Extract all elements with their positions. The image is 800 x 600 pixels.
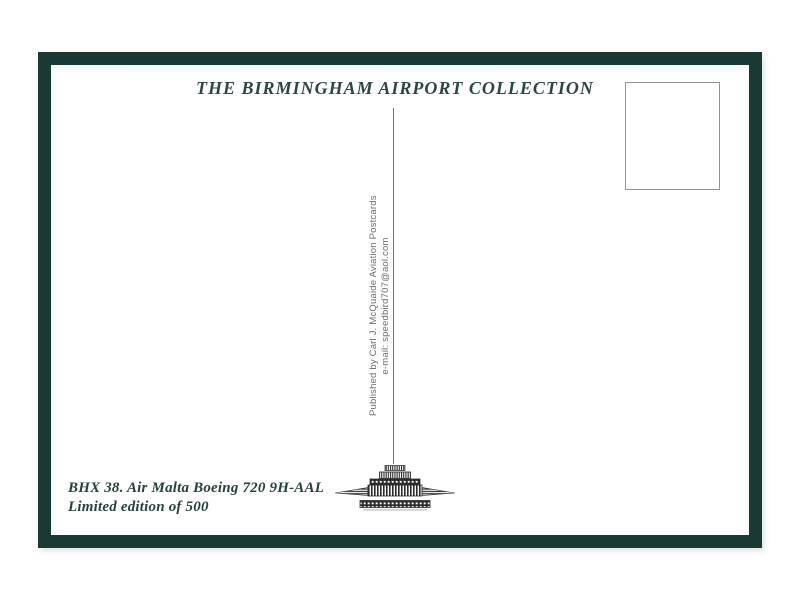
postcard-back: THE BIRMINGHAM AIRPORT COLLECTION Publis… xyxy=(38,52,762,548)
airport-terminal-logo-icon xyxy=(335,462,455,514)
address-divider-line xyxy=(393,108,394,464)
caption-block: BHX 38. Air Malta Boeing 720 9H-AAL Limi… xyxy=(68,479,324,517)
caption-title-line: BHX 38. Air Malta Boeing 720 9H-AAL xyxy=(68,479,324,498)
caption-edition-line: Limited edition of 500 xyxy=(68,498,324,517)
publisher-line: Published by Carl J. McQuaide Aviation P… xyxy=(368,196,380,416)
stamp-box xyxy=(625,82,720,190)
postcard-content-area: THE BIRMINGHAM AIRPORT COLLECTION Publis… xyxy=(51,65,749,535)
publisher-email: e-mail: speedbird707@aol.com xyxy=(380,196,392,416)
publisher-credit: Published by Carl J. McQuaide Aviation P… xyxy=(368,196,392,416)
